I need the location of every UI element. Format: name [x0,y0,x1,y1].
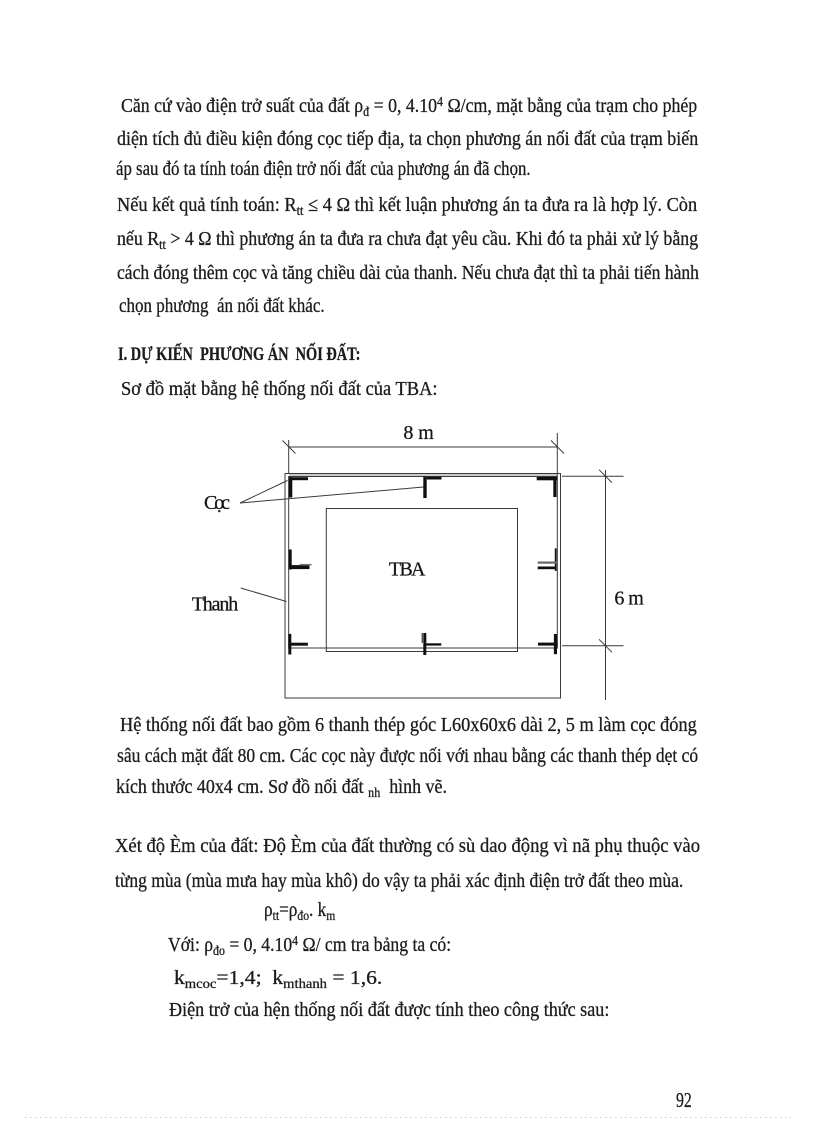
svg-text:6: 6 [614,588,624,610]
svg-text:Cọc: Cọc [204,492,230,514]
svg-text:m: m [628,588,644,610]
svg-text:TBA: TBA [389,559,426,581]
svg-text:8: 8 [403,422,413,444]
svg-text:Thanh: Thanh [192,594,239,616]
svg-text:m: m [418,422,434,444]
